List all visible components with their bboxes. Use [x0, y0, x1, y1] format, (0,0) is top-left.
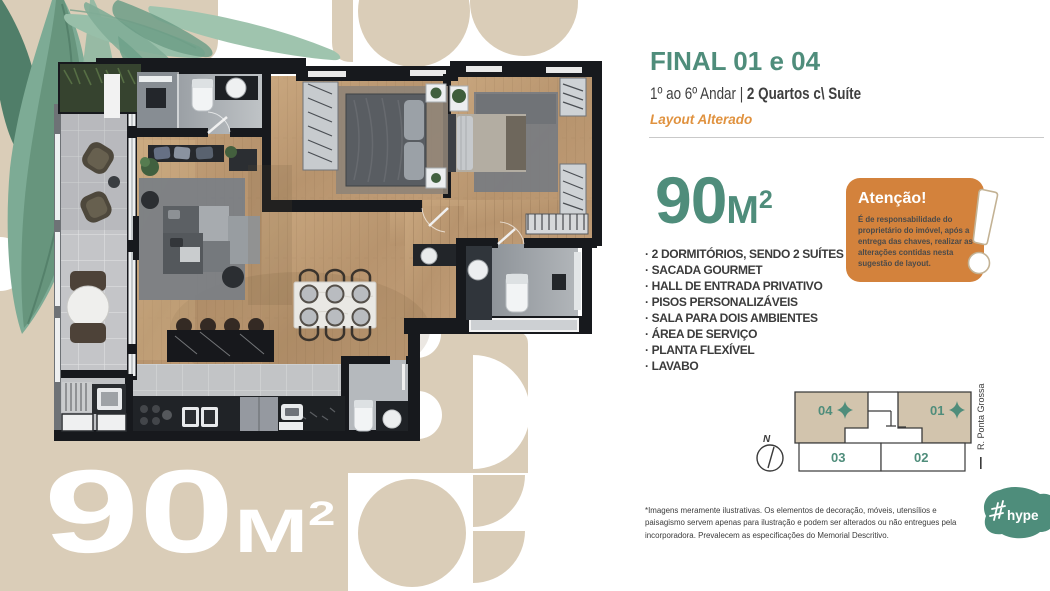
svg-text:02: 02	[914, 450, 928, 465]
svg-text:01: 01	[930, 403, 944, 418]
svg-text:R. Ponta Grossa: R. Ponta Grossa	[976, 383, 986, 450]
svg-text:N: N	[763, 434, 771, 445]
svg-text:04: 04	[818, 403, 833, 418]
svg-text:hype: hype	[1007, 508, 1039, 523]
svg-text:03: 03	[831, 450, 845, 465]
